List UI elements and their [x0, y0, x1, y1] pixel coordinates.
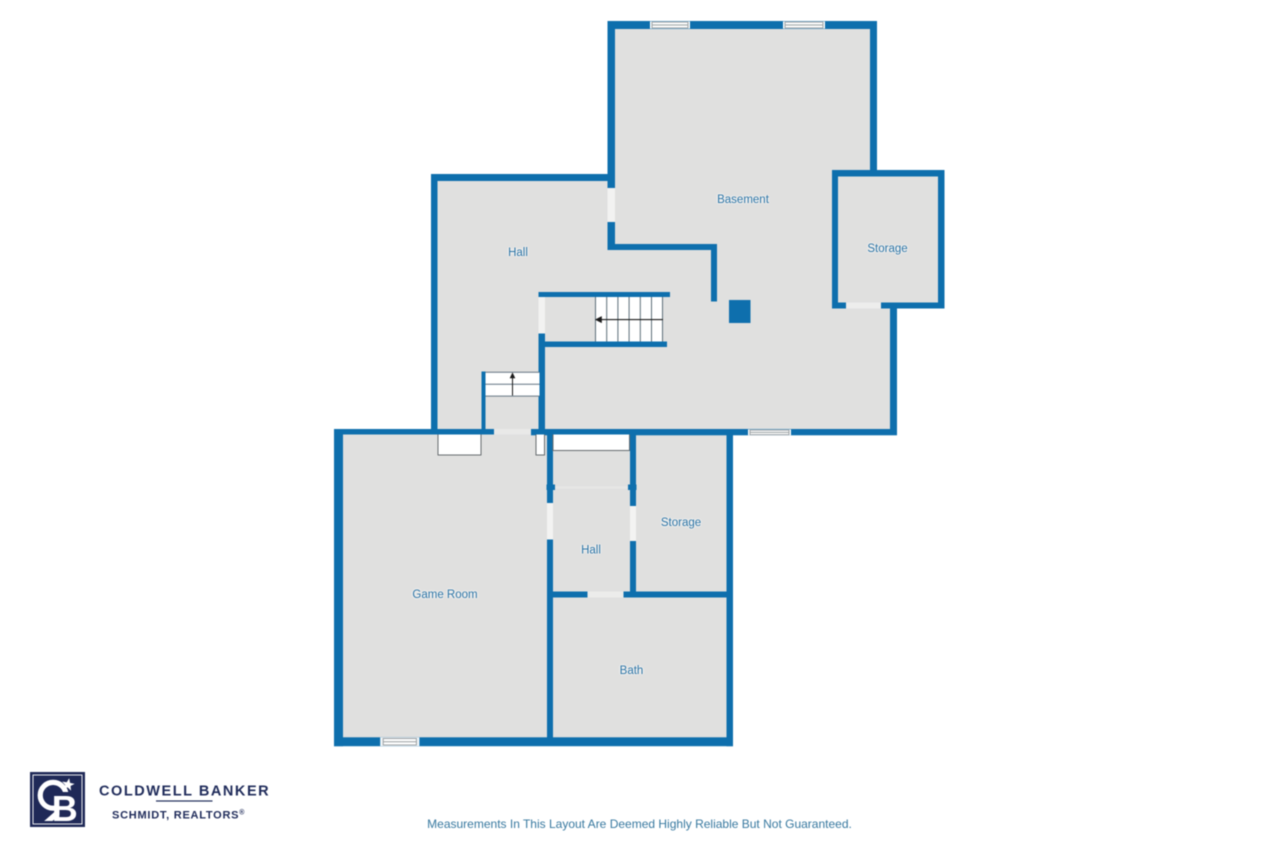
- svg-text:COLDWELL BANKER: COLDWELL BANKER: [99, 784, 270, 800]
- svg-text:Hall: Hall: [508, 247, 528, 259]
- svg-text:Measurements In This Layout Ar: Measurements In This Layout Are Deemed H…: [427, 817, 852, 831]
- svg-text:Bath: Bath: [620, 665, 644, 677]
- svg-text:SCHMIDT, REALTORS®: SCHMIDT, REALTORS®: [112, 809, 245, 822]
- svg-text:Hall: Hall: [581, 545, 601, 557]
- svg-text:Storage: Storage: [867, 243, 907, 255]
- svg-text:B: B: [52, 788, 78, 829]
- svg-text:Storage: Storage: [661, 517, 701, 529]
- svg-text:Game Room: Game Room: [412, 589, 477, 601]
- svg-text:Basement: Basement: [717, 194, 770, 206]
